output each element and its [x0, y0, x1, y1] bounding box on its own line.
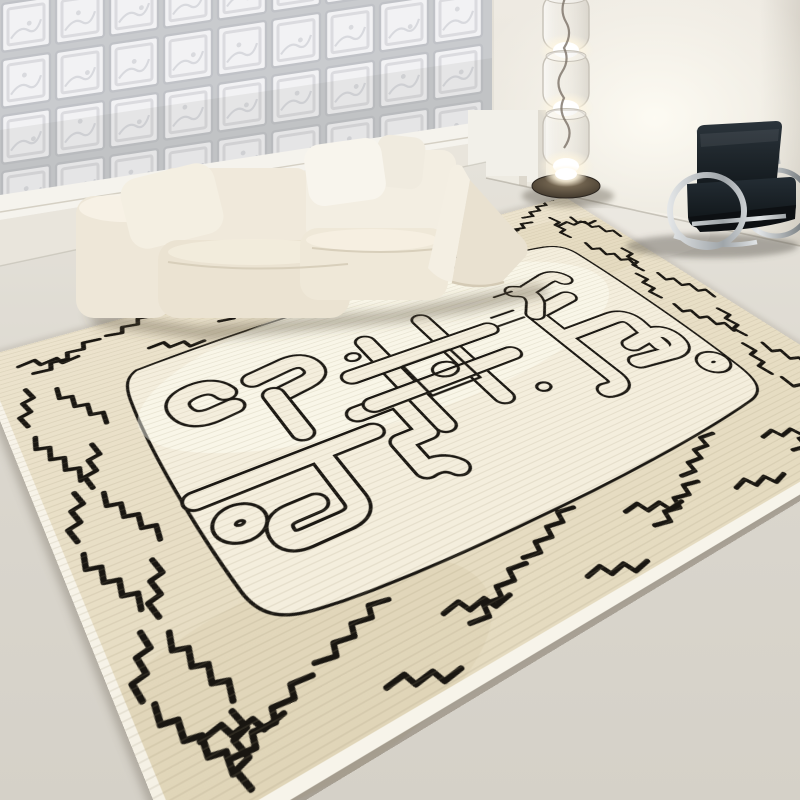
sofa — [76, 134, 552, 340]
floor-lamp — [522, 0, 614, 207]
lamp-glass-column — [538, 0, 594, 182]
lamp-base-bulb — [555, 168, 577, 180]
sofa-seat-right-top — [306, 229, 438, 251]
pillow-right-large — [302, 136, 388, 208]
foreground-layer — [0, 0, 800, 800]
living-room-photo — [0, 0, 800, 800]
lamp-glass-rim — [546, 109, 586, 120]
accent-chair — [626, 121, 800, 258]
